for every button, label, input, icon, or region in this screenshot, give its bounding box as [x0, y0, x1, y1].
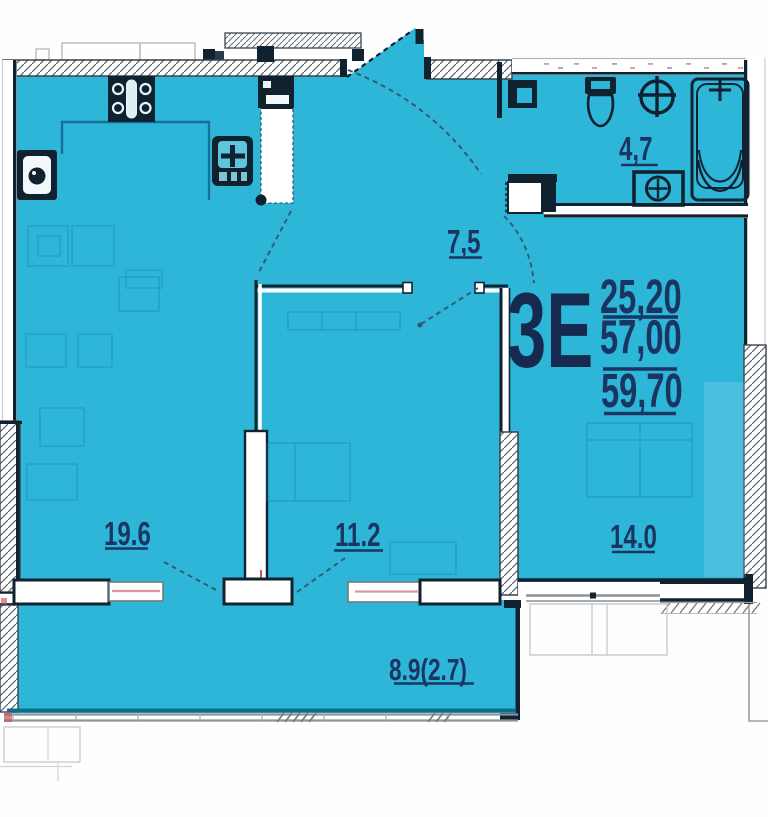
svg-text:4,7: 4,7: [619, 131, 652, 168]
svg-text:8.9(2.7): 8.9(2.7): [389, 651, 467, 686]
svg-text:59,70: 59,70: [601, 364, 683, 418]
svg-text:3Е: 3Е: [507, 271, 593, 390]
svg-text:57,00: 57,00: [600, 310, 682, 364]
svg-text:11.2: 11.2: [335, 517, 381, 554]
svg-text:14.0: 14.0: [610, 519, 657, 556]
svg-text:7,5: 7,5: [447, 224, 480, 261]
